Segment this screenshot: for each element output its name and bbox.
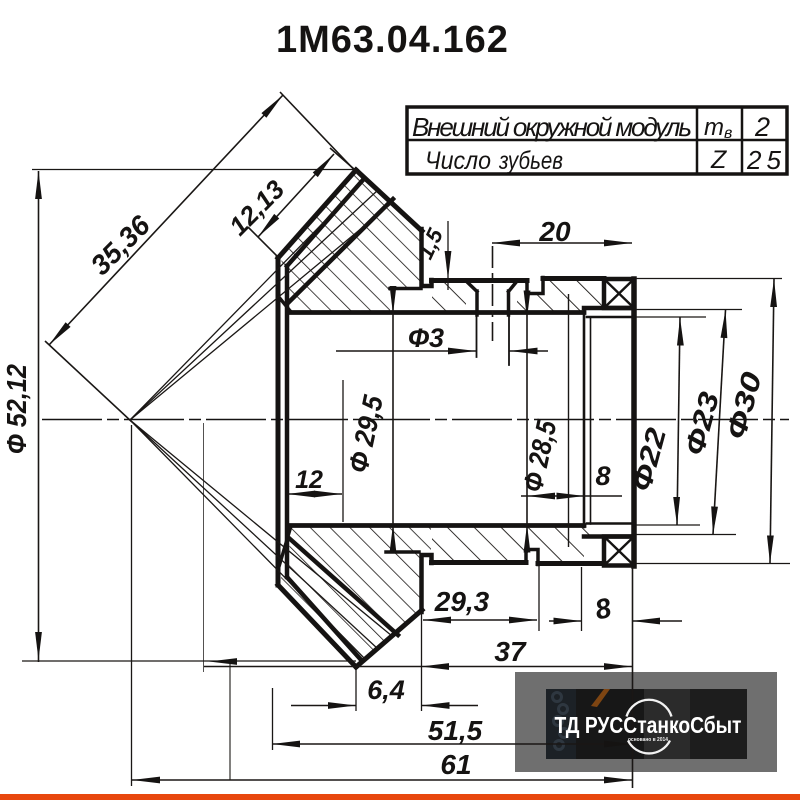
- svg-text:1М63.04.162: 1М63.04.162: [276, 19, 509, 61]
- svg-text:зубьев: зубьев: [498, 147, 563, 175]
- svg-text:Z: Z: [710, 146, 727, 174]
- svg-text:37: 37: [494, 636, 527, 667]
- svg-text:61: 61: [440, 749, 471, 780]
- svg-text:6,4: 6,4: [367, 675, 405, 705]
- svg-text:25: 25: [746, 145, 786, 175]
- svg-text:20: 20: [538, 216, 571, 247]
- svg-text:основано в 2014: основано в 2014: [628, 737, 668, 743]
- svg-text:12: 12: [295, 466, 323, 494]
- svg-text:Ф 52,12: Ф 52,12: [1, 364, 32, 454]
- svg-text:29,3: 29,3: [434, 586, 490, 617]
- svg-text:ТД РУССтанкоСбыт: ТД РУССтанкоСбыт: [555, 712, 742, 738]
- svg-text:51,5: 51,5: [428, 715, 483, 746]
- svg-text:Ф3: Ф3: [408, 323, 444, 353]
- svg-text:Число: Число: [425, 147, 491, 175]
- svg-text:Внешний окружной модуль: Внешний окружной модуль: [412, 112, 692, 142]
- svg-text:2: 2: [754, 112, 770, 142]
- svg-text:8: 8: [595, 461, 610, 491]
